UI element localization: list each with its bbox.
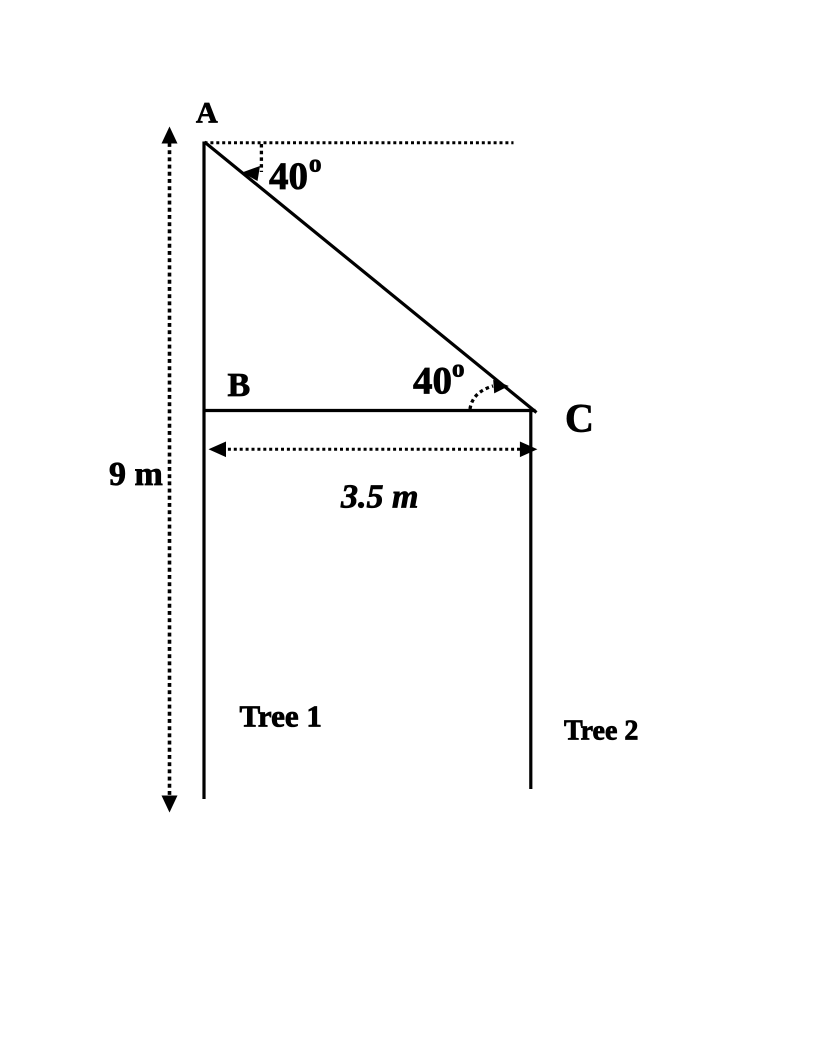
svg-text:3.5 m: 3.5 m (340, 479, 418, 516)
svg-text:40: 40 (413, 360, 452, 403)
svg-text:C: C (565, 396, 594, 441)
svg-text:Tree 1: Tree 1 (240, 699, 322, 734)
svg-text:B: B (228, 367, 251, 404)
svg-text:o: o (309, 151, 322, 178)
svg-text:9 m: 9 m (109, 456, 163, 493)
svg-text:Tree 2: Tree 2 (564, 716, 638, 747)
svg-text:o: o (452, 356, 465, 383)
svg-text:A: A (196, 97, 218, 130)
svg-text:40: 40 (269, 155, 308, 198)
